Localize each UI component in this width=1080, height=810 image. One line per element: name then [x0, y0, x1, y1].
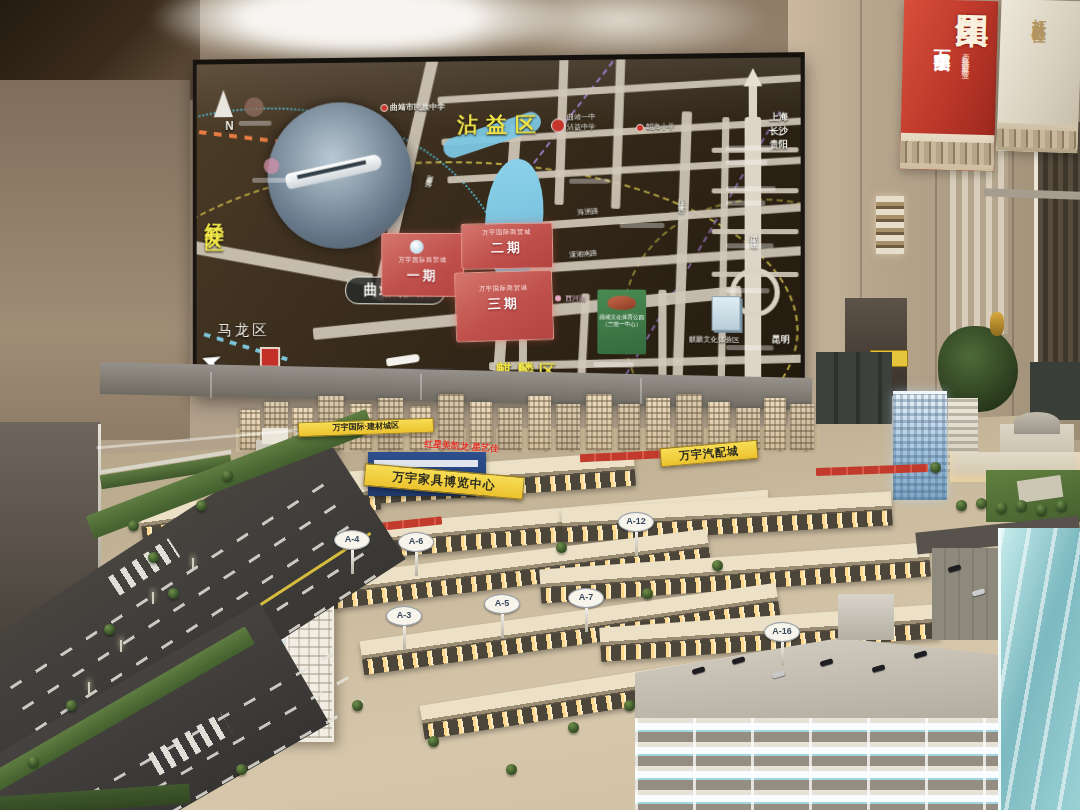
banner-white-title: 打造核心区位 — [1031, 8, 1049, 21]
poi-blur-label — [726, 288, 769, 293]
plot-marker-label: A-12 — [618, 512, 654, 532]
poi-dot-school — [551, 118, 565, 132]
park-subtitle: （三馆一中心） — [597, 321, 646, 328]
compass-label: N — [225, 119, 233, 133]
tree — [168, 588, 179, 599]
master-plan-map-board: ➤ N 上海 长沙 贵阳 沪昆高速 — [193, 52, 805, 401]
glass-reflection — [210, 372, 212, 398]
banner-title: 万宇集团 — [931, 36, 954, 45]
tree — [1036, 504, 1047, 515]
garage-stair-tower — [838, 594, 894, 640]
residential-tower — [790, 404, 814, 450]
plot-marker-post — [585, 608, 588, 632]
dark-towers — [816, 352, 892, 424]
plot-marker-label: A-16 — [764, 622, 800, 642]
tree — [642, 588, 653, 599]
poi-blur-label — [569, 179, 609, 184]
window-light-slit — [1034, 122, 1038, 372]
street-lamp — [152, 592, 154, 604]
poi-dot-pink — [555, 295, 561, 301]
poi-blur-label — [252, 178, 291, 183]
glass-reflection — [640, 378, 642, 404]
hukun-expressway — [745, 117, 762, 394]
poi-blur-label — [726, 186, 776, 191]
north-exit-arrow-icon — [744, 68, 763, 87]
bullet-train-image — [284, 153, 382, 189]
xihe-poi: 西河路 — [565, 293, 586, 303]
tree — [712, 560, 723, 571]
banner-city-image — [900, 133, 995, 171]
tree — [66, 700, 77, 711]
district-zhanyi: 沾益区 — [457, 111, 544, 140]
residential-tower — [528, 396, 551, 450]
chaohai-school-poi: 朝海小学 — [646, 122, 675, 132]
window-dark-curtain — [1038, 122, 1080, 372]
minzu-school-poi: 曲靖市民族中学 — [390, 101, 445, 112]
tree — [352, 700, 363, 711]
residential-tower — [646, 398, 670, 450]
plot-marker-post — [403, 626, 406, 650]
phase-1-brand: 万宇国际商贸城 — [382, 256, 463, 265]
phase-2-plot: 万宇国际商贸城 二期 — [461, 222, 554, 270]
haizhou-road-label: 海洲路 — [577, 206, 599, 218]
phase-1-label: 一期 — [382, 267, 463, 285]
phase-1-plot: 万宇国际商贸城 一期 — [381, 233, 464, 297]
plot-marker-post — [351, 550, 354, 574]
tree — [428, 736, 439, 747]
poi-blur-label — [726, 145, 774, 150]
tree — [624, 700, 635, 711]
glass-reflection — [420, 374, 422, 400]
plot-marker-label: A-6 — [398, 532, 434, 552]
banner-city-skyline — [997, 129, 1079, 150]
tree — [996, 502, 1007, 513]
sports-park-plot: 曲靖文化体育公园 （三馆一中心） — [597, 289, 646, 354]
poi-blur-label — [726, 243, 774, 248]
yizhong-school-line2: 沾益中学 — [567, 122, 595, 132]
plot-marker-a7: A-7 — [568, 588, 604, 632]
residential-tower — [556, 404, 580, 450]
phase-3-brand: 万宇国际商贸城 — [455, 283, 551, 295]
street-lamp — [120, 640, 122, 652]
white-promo-banner: 打造核心区位 — [996, 0, 1080, 153]
train-photo-circle — [268, 102, 412, 249]
plot-marker-label: A-5 — [484, 594, 520, 614]
garage-pilasters — [635, 718, 1007, 810]
poi-circle — [245, 97, 264, 117]
phase-2-brand: 万宇国际商贸城 — [462, 227, 552, 238]
poi-blur-label — [593, 362, 634, 367]
poi-dot — [380, 104, 388, 112]
poi-dot — [636, 124, 644, 132]
plot-marker-label: A-7 — [568, 588, 604, 608]
poi-blur-label — [726, 160, 767, 165]
tree — [956, 500, 967, 511]
tree — [976, 498, 987, 509]
tree — [148, 552, 159, 563]
tree — [506, 764, 517, 775]
street-lamp — [88, 682, 90, 694]
blue-glass-tower — [893, 391, 947, 500]
tree — [128, 520, 139, 531]
residential-tower — [676, 394, 702, 450]
dome-roof — [1014, 412, 1060, 434]
stadium-icon — [608, 296, 636, 310]
plot-marker-a3: A-3 — [386, 606, 422, 650]
banner-subtitle: 产业集群运营服务企业 — [958, 46, 970, 66]
banner-city-image — [996, 123, 1078, 154]
tree — [28, 756, 39, 767]
plot-marker-post — [415, 552, 418, 576]
residential-tower — [498, 408, 522, 450]
zhujiangyuan-road-label: 珠江源大道 — [676, 193, 686, 203]
sales-center-photo: 集团 万宇集团 产业集群运营服务企业 打造核心区位 ➤ N — [0, 0, 1080, 810]
glass-streaks — [1001, 528, 1080, 810]
phase-3-label: 三期 — [456, 294, 552, 315]
plot-marker-a5: A-5 — [484, 594, 520, 638]
plot-marker-a6: A-6 — [398, 532, 434, 576]
landmark-label: 麒麟文化体验区 — [689, 335, 739, 346]
plot-marker-a4: A-4 — [334, 530, 370, 574]
plot-marker-post — [781, 642, 784, 666]
south-exit-city: 昆明 — [772, 333, 791, 346]
plot-marker-post — [501, 614, 504, 638]
yizhong-school-line1: 曲靖一中 — [567, 112, 595, 122]
tree — [236, 764, 247, 775]
residential-tower — [586, 394, 612, 450]
glass-barrier-corner — [998, 528, 1080, 810]
poi-blur-label — [726, 200, 765, 205]
sheer-curtain — [950, 146, 1008, 334]
street-lamp — [192, 558, 194, 570]
plot-marker-a16: A-16 — [764, 622, 800, 666]
district-jingkai: 经开区 — [202, 207, 228, 222]
xiaoxiang-road-label: 潇湘南路 — [569, 248, 598, 260]
skylight-glare-2 — [470, 0, 770, 60]
poi-blur-label — [239, 121, 272, 126]
north-exit-city-1: 上海 — [769, 111, 788, 125]
tree — [1016, 500, 1027, 511]
tree — [568, 722, 579, 733]
banner-city-skyline — [900, 141, 995, 165]
north-arrow-icon — [214, 90, 233, 118]
poi-circle-pink — [264, 158, 279, 174]
expressway-north-stem — [749, 84, 757, 119]
north-exit-city-2: 长沙 — [769, 124, 788, 138]
tree — [196, 500, 207, 511]
landmark-building-icon — [712, 296, 741, 331]
red-promo-banner: 集团 万宇集团 产业集群运营服务企业 — [900, 0, 998, 171]
tree — [556, 542, 567, 553]
gold-ornament — [990, 312, 1004, 336]
plot-marker-label: A-4 — [334, 530, 370, 550]
brand-logo-icon — [410, 240, 424, 254]
plot-marker-label: A-3 — [386, 606, 422, 626]
plot-marker-post — [635, 532, 638, 556]
liaokuo-road-label: 寥廓北路 — [425, 168, 436, 178]
residential-tower — [764, 398, 786, 450]
district-malong: 马龙区 — [218, 321, 270, 340]
plot-marker-a12: A-12 — [618, 512, 654, 556]
tree — [104, 624, 115, 635]
hukun-expressway-label: 沪昆高速 — [747, 227, 758, 235]
tree — [1056, 500, 1067, 511]
poi-blur-label — [620, 223, 665, 228]
wall-sconce-lamp — [876, 196, 904, 254]
phase-3-plot: 万宇国际商贸城 三期 — [454, 269, 554, 342]
residential-tower — [618, 404, 640, 450]
tree — [222, 470, 233, 481]
tree — [930, 462, 941, 473]
poi-blur-label — [726, 345, 774, 351]
phase-2-label: 二期 — [462, 238, 552, 257]
